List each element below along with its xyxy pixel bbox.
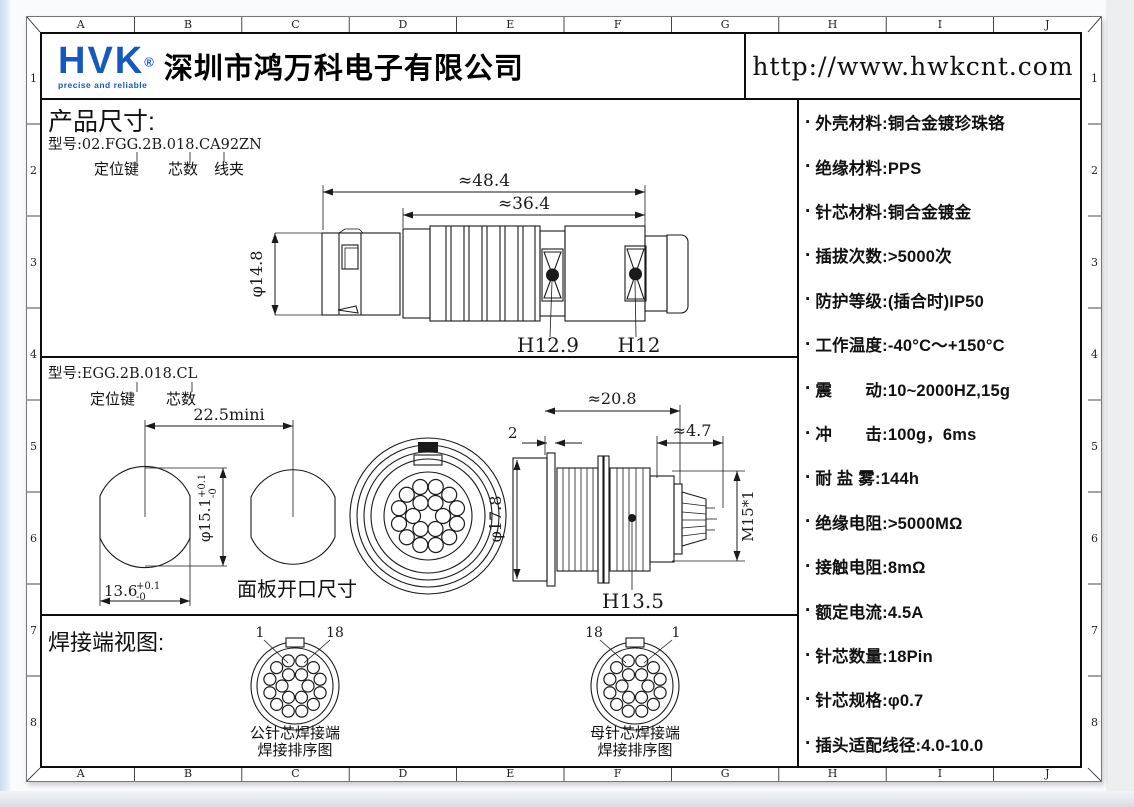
pin-hole [449, 501, 464, 516]
spec-text: 针芯数量:18Pin [815, 643, 933, 667]
spec-bullet-icon: · [805, 734, 811, 753]
grid-row-label-left: 8 [27, 676, 40, 768]
spec-text: 防护等级:(插合时)IP50 [815, 288, 984, 312]
pin-hole [276, 680, 288, 692]
female-pin-label-first: 18 [585, 625, 603, 641]
dim-panel-thickness: 2 [508, 424, 518, 442]
spec-bullet-icon: · [805, 379, 811, 398]
spec-item: ·插头适配线径:4.0-10.0 [799, 722, 1078, 766]
spec-item: ·接触电阻:8mΩ [799, 544, 1078, 588]
solder-end-drawing: 焊接端视图: 1 18 公针芯焊接端 焊接排序图 [42, 616, 799, 762]
key-mark [418, 442, 438, 452]
spec-item: ·插拔次数:>5000次 [799, 233, 1078, 277]
pin-hole [647, 662, 659, 674]
male-pin-label-last: 18 [326, 625, 344, 641]
spec-item: ·针芯材料:铜合金镀金 [799, 189, 1078, 233]
grid-col-label-top: E [457, 17, 564, 32]
grid-col-label-bottom: E [457, 766, 564, 781]
pin-hole [442, 487, 457, 502]
grid-col-label-bottom: A [27, 766, 134, 781]
pin-hole [314, 687, 326, 699]
desktop-background: { "grid": { "cols": ["A","B","C","D","E"… [0, 0, 1134, 807]
spec-item: ·震 动:10~2000HZ,15g [799, 366, 1078, 410]
company-cell: HVK® precise and reliable 深圳市鸿万科电子有限公司 [42, 34, 746, 98]
company-name: 深圳市鸿万科电子有限公司 [164, 45, 524, 87]
dim-thread-spec: M15*1 [739, 490, 757, 542]
dim-panel-diameter-tol-dn: -0 [208, 488, 219, 498]
female-caption-line2: 焊接排序图 [597, 742, 672, 759]
pin-hole [654, 673, 666, 685]
dim-panel-diameter-tol-up: +0.1 [197, 474, 208, 498]
grid-row-label-right: 1 [1088, 32, 1101, 124]
grid-col-label-bottom: H [779, 766, 886, 781]
grid-col-label-top: D [349, 17, 456, 32]
grid-row-label-right: 3 [1088, 216, 1101, 308]
spec-bullet-icon: · [805, 646, 811, 665]
drawing-sheet: HVK® precise and reliable 深圳市鸿万科电子有限公司 h… [26, 16, 1102, 782]
pin-hole [296, 705, 308, 717]
pin-hole [296, 669, 308, 681]
pin-hole [307, 662, 319, 674]
spec-bullet-icon: · [805, 246, 811, 265]
logo-tagline: precise and reliable [58, 81, 154, 90]
spec-bullet-icon: · [805, 468, 811, 487]
spec-bullet-icon: · [805, 157, 811, 176]
section2-model: 型号:EGG.2B.018.CL [48, 365, 198, 382]
spec-item: ·针芯规格:φ0.7 [799, 677, 1078, 721]
drawing-column: 产品尺寸: 型号:02.FGG.2B.018.CA92ZN 定位键 芯数 线夹 … [42, 100, 799, 766]
female-caption-line1: 母针芯焊接端 [590, 725, 680, 742]
grid-row-label-left: 3 [27, 216, 40, 308]
pin-hole [604, 673, 616, 685]
window-edge-bottom [0, 791, 1134, 807]
pin-hole [399, 530, 414, 545]
spec-bullet-icon: · [805, 290, 811, 309]
spec-text: 冲 击:100g，6ms [815, 421, 976, 445]
grid-col-label-top: A [27, 17, 134, 32]
pin-hole [636, 669, 648, 681]
pin-hole [271, 662, 283, 674]
pin-hole [264, 687, 276, 699]
callout-positioning-key: 定位键 [94, 161, 139, 178]
spec-bullet-icon: · [805, 557, 811, 576]
panel-cutout-label: 面板开口尺寸 [237, 578, 357, 601]
dim-total-length: ≈48.4 [458, 171, 510, 191]
hvk-logo: HVK® precise and reliable [58, 42, 154, 90]
hex-marker-13-5-dot [628, 514, 636, 522]
spec-item: ·冲 击:100g，6ms [799, 411, 1078, 455]
grid-col-label-bottom: F [564, 766, 671, 781]
pin-hole [611, 662, 623, 674]
grid-row-label-left: 2 [27, 124, 40, 216]
pin-hole [636, 705, 648, 717]
receptacle-drawing: 型号:EGG.2B.018.CL 定位键 芯数 22.5mini [42, 358, 799, 616]
pin-hole [296, 691, 308, 703]
grid-row-label-right: 5 [1088, 400, 1101, 492]
spec-bullet-icon: · [805, 690, 811, 709]
grid-row-label-right: 8 [1088, 676, 1101, 768]
website-url: http://www.hwkcnt.com [746, 34, 1080, 98]
grid-col-label-top: H [779, 17, 886, 32]
dim-pitch: 22.5mini [193, 405, 264, 424]
pin-hole [314, 673, 326, 685]
section-receptacle: 型号:EGG.2B.018.CL 定位键 芯数 22.5mini [42, 358, 797, 616]
spec-text: 额定电流:4.5A [815, 599, 923, 623]
spec-item: ·绝缘电阻:>5000MΩ [799, 500, 1078, 544]
title-block: HVK® precise and reliable 深圳市鸿万科电子有限公司 h… [42, 34, 1080, 100]
pin-hole [636, 691, 648, 703]
grid-col-label-bottom: C [242, 766, 349, 781]
pin-hole [413, 496, 428, 511]
grid-col-label-bottom: G [671, 766, 778, 781]
dim-front-length: ≈36.4 [498, 194, 550, 214]
grid-row-label-left: 7 [27, 584, 40, 676]
spec-text: 外壳材料:铜合金镀珍珠铬 [815, 110, 1004, 134]
pin-hole [399, 487, 414, 502]
grid-row-label-right: 7 [1088, 584, 1101, 676]
spec-item: ·工作温度:-40°C～+150°C [799, 322, 1078, 366]
pin-hole [413, 537, 428, 552]
grid-col-label-top: I [886, 17, 993, 32]
hex-label-h129: H12.9 [517, 333, 579, 357]
spec-bullet-icon: · [805, 601, 811, 620]
grid-col-label-top: C [242, 17, 349, 32]
section-solder-views: 焊接端视图: 1 18 公针芯焊接端 焊接排序图 [42, 616, 797, 762]
spec-item: ·绝缘材料:PPS [799, 144, 1078, 188]
pin-hole [611, 698, 623, 710]
hex-label-h135: H13.5 [602, 589, 664, 613]
logo-text: HVK [58, 40, 144, 82]
content-area: 产品尺寸: 型号:02.FGG.2B.018.CA92ZN 定位键 芯数 线夹 … [42, 100, 1080, 766]
dim-flange-diameter: φ17.8 [486, 496, 505, 543]
spec-item: ·额定电流:4.5A [799, 588, 1078, 632]
window-edge-right [1106, 0, 1134, 807]
section1-model: 型号:02.FGG.2B.018.CA92ZN [48, 136, 262, 153]
spec-panel: ·外壳材料:铜合金镀珍珠铬·绝缘材料:PPS·针芯材料:铜合金镀金·插拔次数:>… [799, 100, 1078, 766]
spec-bullet-icon: · [805, 202, 811, 221]
pin-hole [271, 698, 283, 710]
male-caption-line1: 公针芯焊接端 [250, 725, 340, 742]
spec-text: 绝缘电阻:>5000MΩ [815, 510, 962, 534]
spec-text: 耐 盐 雾:144h [815, 465, 919, 489]
pin-hole [428, 521, 443, 536]
pin-hole [282, 655, 294, 667]
spec-text: 绝缘材料:PPS [815, 155, 921, 179]
pin-hole [413, 480, 428, 495]
spec-bullet-icon: · [805, 424, 811, 443]
dim-plug-diameter: φ14.8 [247, 251, 266, 298]
callout-core-count-2: 芯数 [166, 391, 196, 408]
section3-title: 焊接端视图: [48, 630, 164, 655]
pin-hole [642, 680, 654, 692]
spec-text: 工作温度:-40°C～+150°C [815, 332, 1004, 356]
female-solder-view: 18 1 母针芯焊接端 焊接排序图 [585, 625, 680, 759]
pin-hole [264, 673, 276, 685]
spec-text: 插头适配线径:4.0-10.0 [815, 732, 983, 756]
grid-col-label-top: B [134, 17, 241, 32]
grid-row-label-left: 6 [27, 492, 40, 584]
registered-mark-icon: ® [144, 55, 154, 70]
pin-hole [623, 691, 635, 703]
male-pin-label-first: 1 [256, 625, 265, 641]
dim-panel-width: 13.6 [104, 582, 137, 600]
pin-hole [647, 698, 659, 710]
spec-bullet-icon: · [805, 335, 811, 354]
pin-hole [428, 480, 443, 495]
spec-item: ·耐 盐 雾:144h [799, 455, 1078, 499]
pin-hole [616, 680, 628, 692]
receptacle-side-view [513, 453, 717, 586]
spec-item: ·防护等级:(插合时)IP50 [799, 278, 1078, 322]
dim-panel-diameter: φ15.1 [196, 498, 214, 542]
male-caption-line2: 焊接排序图 [257, 742, 332, 759]
pin-hole [392, 501, 407, 516]
grid-row-label-right: 6 [1088, 492, 1101, 584]
pin-hole [307, 698, 319, 710]
grid-row-label-left: 4 [27, 308, 40, 400]
section-product-dimensions: 产品尺寸: 型号:02.FGG.2B.018.CA92ZN 定位键 芯数 线夹 … [42, 100, 797, 358]
spec-text: 针芯材料:铜合金镀金 [815, 199, 971, 223]
female-pin-label-last: 1 [672, 625, 681, 641]
pin-hole [623, 669, 635, 681]
pin-hole [282, 705, 294, 717]
callout-positioning-key-2: 定位键 [90, 391, 135, 408]
hex-label-h12: H12 [618, 333, 661, 357]
grid-col-label-top: G [671, 17, 778, 32]
pin-hole [392, 516, 407, 531]
male-solder-view: 1 18 公针芯焊接端 焊接排序图 [250, 625, 344, 759]
pin-hole [428, 537, 443, 552]
grid-col-label-top: J [994, 17, 1101, 32]
grid-col-label-bottom: I [886, 766, 993, 781]
dim-socket-length: ≈20.8 [587, 389, 636, 408]
spec-text: 接触电阻:8mΩ [815, 554, 925, 578]
pin-hole [449, 516, 464, 531]
callout-core-count: 芯数 [168, 161, 198, 178]
dim-tail-length: ≈4.7 [673, 421, 712, 440]
pin-hole [442, 530, 457, 545]
spec-item: ·外壳材料:铜合金镀珍珠铬 [799, 100, 1078, 144]
grid-col-label-top: F [564, 17, 671, 32]
receptacle-front-view [350, 438, 506, 594]
pin-hole [283, 691, 295, 703]
pin-hole [283, 669, 295, 681]
hex-marker-12 [625, 246, 646, 337]
grid-col-label-bottom: B [134, 766, 241, 781]
callout-wire-clamp: 线夹 [214, 161, 244, 178]
window-edge-left [0, 0, 10, 807]
grid-row-label-right: 4 [1088, 308, 1101, 400]
hex-marker-12-9 [542, 249, 563, 337]
spec-text: 震 动:10~2000HZ,15g [815, 377, 1010, 401]
grid-col-label-bottom: J [994, 766, 1101, 781]
spec-item: ·针芯数量:18Pin [799, 633, 1078, 677]
pin-hole [604, 687, 616, 699]
pin-hole [654, 687, 666, 699]
drawing-frame: HVK® precise and reliable 深圳市鸿万科电子有限公司 h… [40, 32, 1082, 768]
plug-drawing: 产品尺寸: 型号:02.FGG.2B.018.CA92ZN 定位键 芯数 线夹 … [42, 100, 799, 358]
grid-col-label-bottom: D [349, 766, 456, 781]
spec-text: 插拔次数:>5000次 [815, 243, 952, 267]
section1-title: 产品尺寸: [48, 108, 155, 136]
spec-bullet-icon: · [805, 512, 811, 531]
dim-panel-width-tol-up: +0.1 [136, 581, 160, 592]
spec-bullet-icon: · [805, 113, 811, 132]
spec-text: 针芯规格:φ0.7 [815, 687, 923, 711]
dim-panel-width-tol-dn: -0 [136, 592, 146, 603]
pin-hole [636, 655, 648, 667]
grid-row-label-right: 2 [1088, 124, 1101, 216]
pin-hole [302, 680, 314, 692]
grid-row-label-left: 5 [27, 400, 40, 492]
grid-row-label-left: 1 [27, 32, 40, 124]
pin-hole [622, 705, 634, 717]
